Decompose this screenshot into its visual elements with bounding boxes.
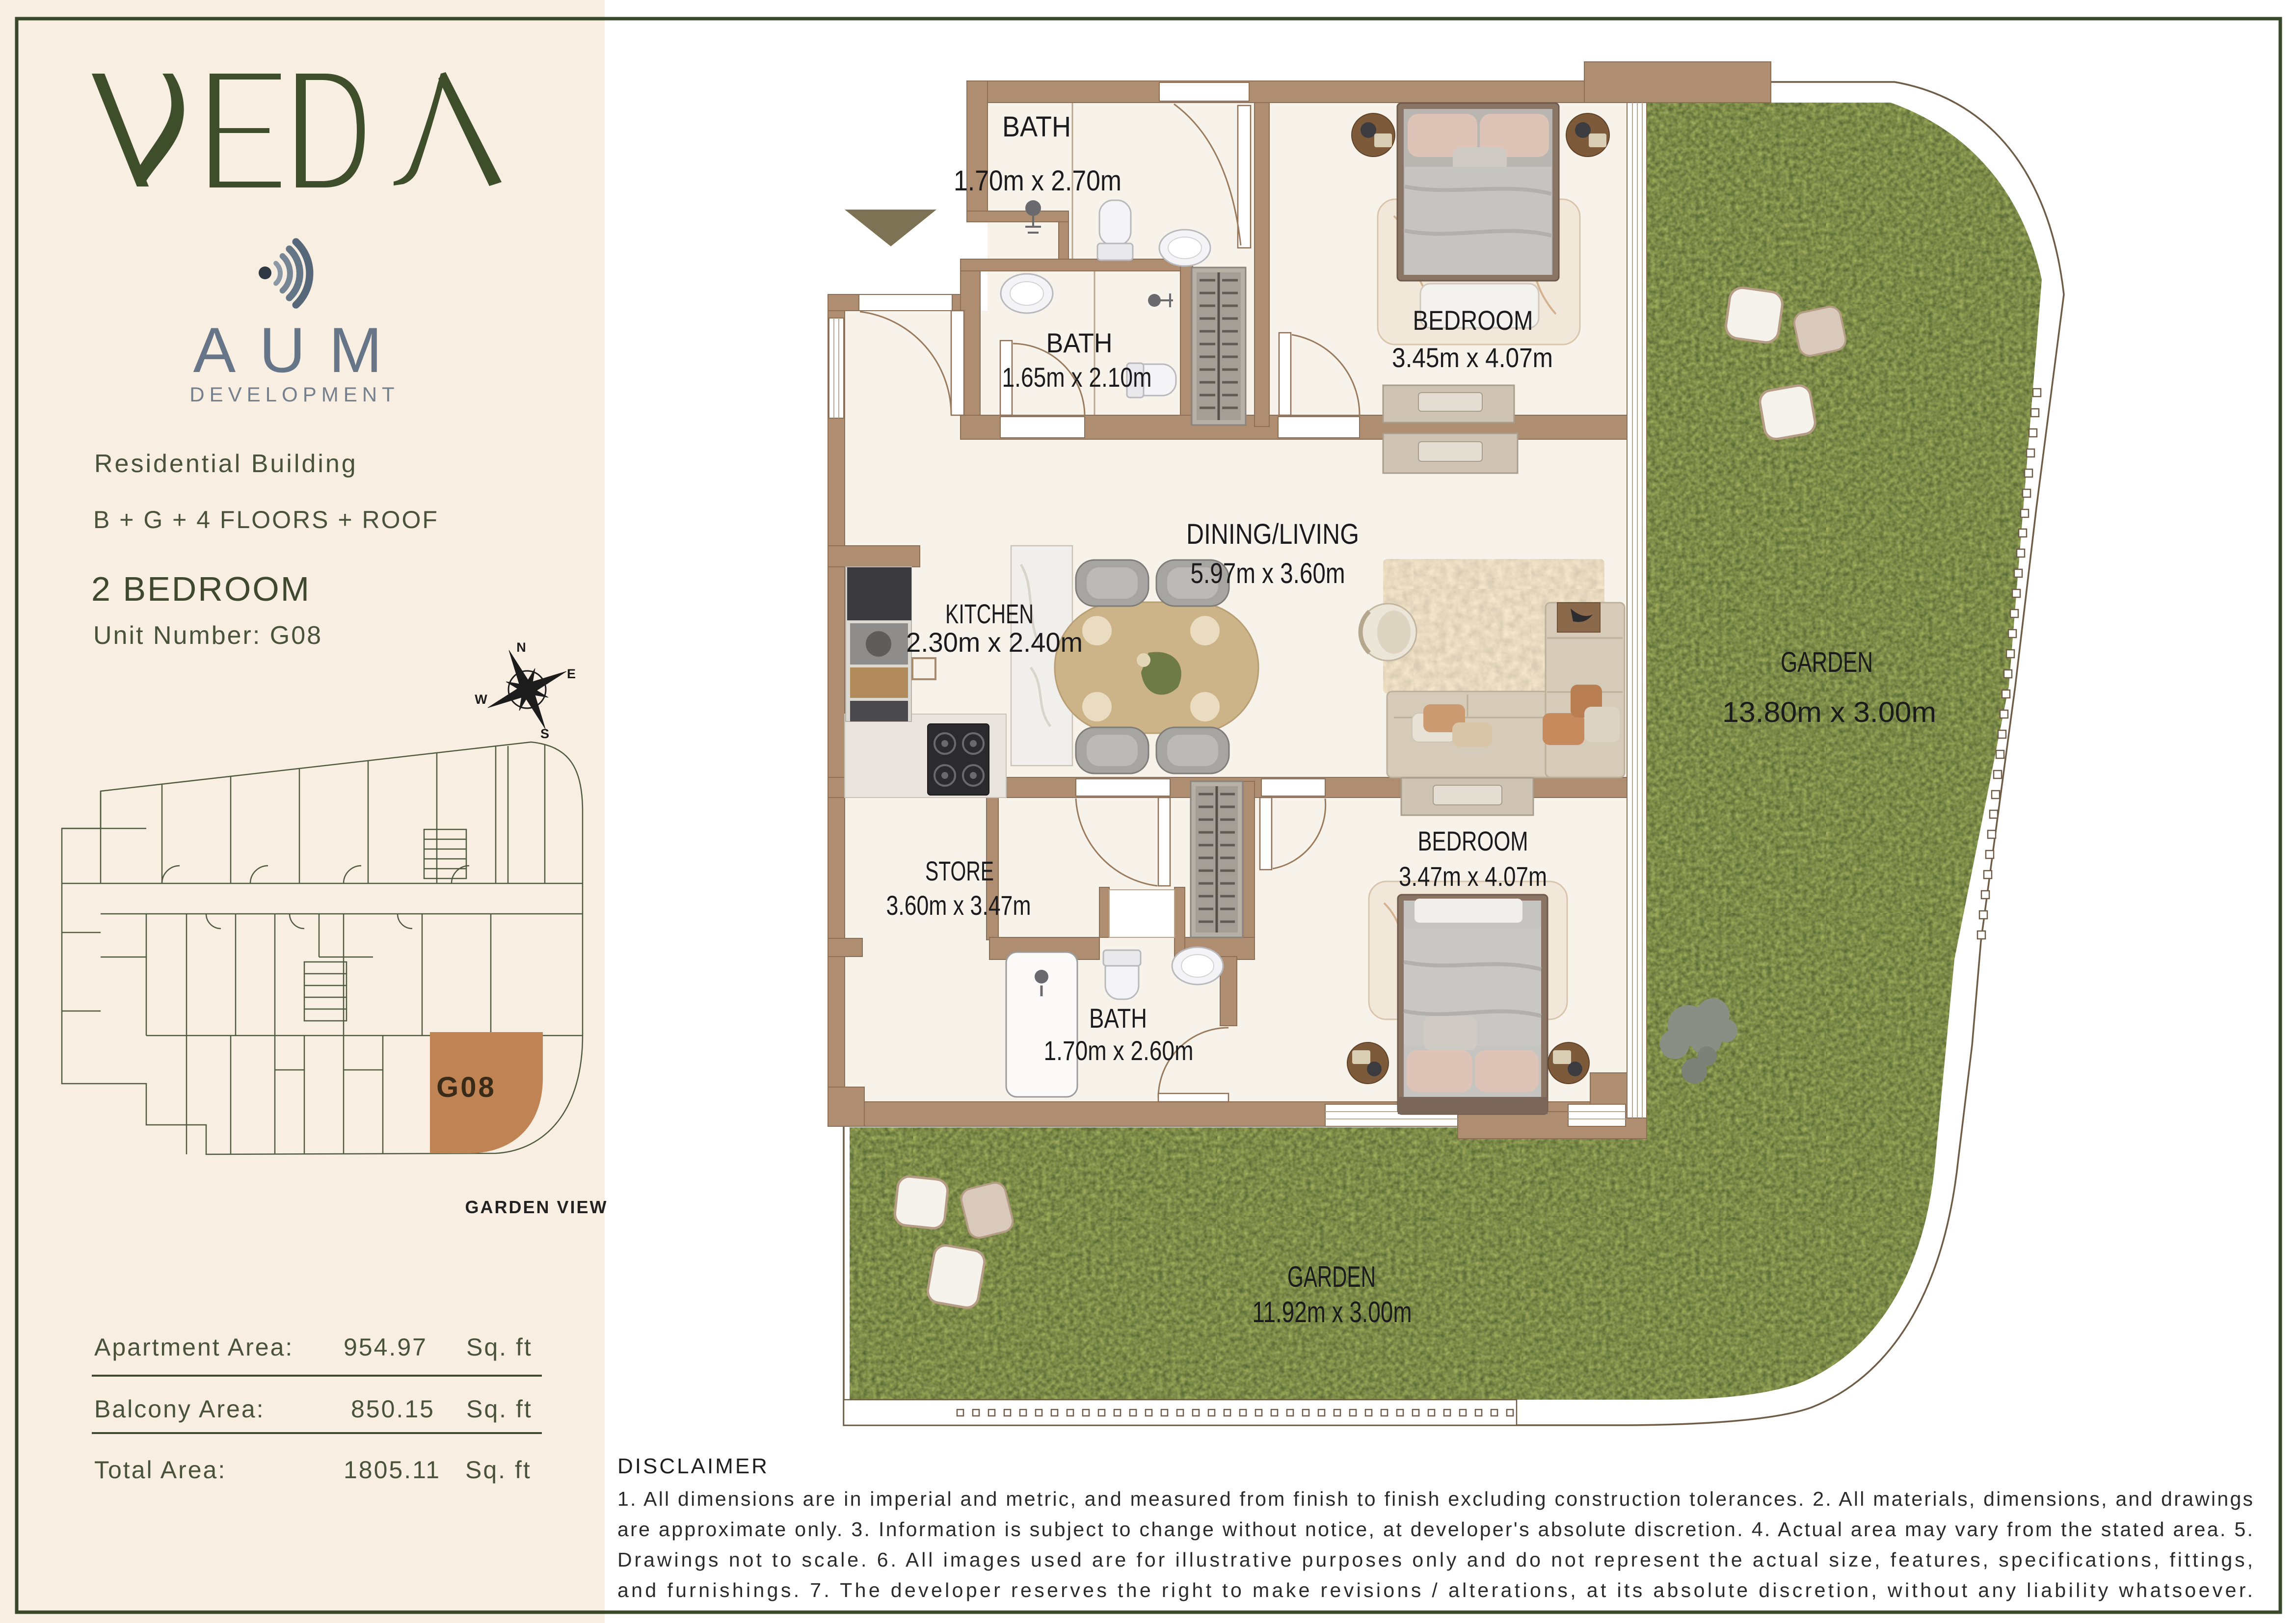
svg-text:1.65m x 2.10m: 1.65m x 2.10m [1002, 362, 1152, 393]
svg-text:BEDROOM: BEDROOM [1418, 825, 1528, 856]
svg-text:Sq. ft: Sq. ft [466, 1333, 533, 1361]
svg-text:Total Area:: Total Area: [94, 1456, 226, 1484]
svg-text:G08: G08 [436, 1071, 496, 1103]
svg-text:STORE: STORE [925, 855, 994, 886]
svg-text:S: S [540, 726, 549, 741]
svg-text:GARDEN VIEW: GARDEN VIEW [465, 1197, 608, 1217]
svg-text:DEVELOPMENT: DEVELOPMENT [189, 383, 399, 406]
svg-text:Balcony Area:: Balcony Area: [94, 1395, 265, 1423]
svg-text:2.30m x 2.40m: 2.30m x 2.40m [906, 627, 1083, 658]
svg-text:3.45m x 4.07m: 3.45m x 4.07m [1392, 342, 1553, 373]
svg-text:Sq. ft: Sq. ft [465, 1456, 532, 1484]
svg-text:AUM: AUM [193, 314, 406, 386]
svg-text:Residential Building: Residential Building [94, 450, 358, 478]
svg-text:3.47m x 4.07m: 3.47m x 4.07m [1399, 861, 1547, 892]
svg-text:DISCLAIMER: DISCLAIMER [617, 1454, 769, 1478]
svg-text:GARDEN: GARDEN [1287, 1260, 1376, 1293]
svg-text:Unit Number: G08: Unit Number: G08 [93, 621, 322, 650]
svg-text:850.15: 850.15 [351, 1395, 435, 1423]
svg-text:Apartment Area:: Apartment Area: [94, 1333, 294, 1361]
svg-text:and furnishings. 7. The develo: and furnishings. 7. The developer reserv… [617, 1579, 2253, 1601]
svg-text:BEDROOM: BEDROOM [1413, 305, 1533, 336]
svg-text:DINING/LIVING: DINING/LIVING [1186, 518, 1359, 550]
svg-text:2 BEDROOM: 2 BEDROOM [91, 570, 311, 608]
svg-text:W: W [475, 692, 487, 707]
svg-text:13.80m x 3.00m: 13.80m x 3.00m [1722, 696, 1936, 728]
svg-text:1.70m x 2.60m: 1.70m x 2.60m [1044, 1035, 1194, 1066]
svg-text:BATH: BATH [1089, 1003, 1147, 1034]
svg-text:B + G + 4 FLOORS + ROOF: B + G + 4 FLOORS + ROOF [93, 506, 439, 533]
svg-text:Sq. ft: Sq. ft [466, 1395, 533, 1423]
svg-text:3.60m x 3.47m: 3.60m x 3.47m [886, 890, 1031, 921]
svg-text:1805.11: 1805.11 [344, 1456, 441, 1484]
svg-text:BATH: BATH [1002, 111, 1071, 143]
svg-text:KITCHEN: KITCHEN [945, 598, 1034, 629]
svg-text:1. All dimensions are in imper: 1. All dimensions are in imperial and me… [617, 1488, 2253, 1510]
svg-text:E: E [567, 666, 576, 681]
svg-text:954.97: 954.97 [344, 1333, 427, 1361]
svg-text:BATH: BATH [1046, 327, 1113, 358]
svg-text:Drawings not to scale. 6. All: Drawings not to scale. 6. All images use… [617, 1548, 2253, 1571]
svg-text:11.92m x 3.00m: 11.92m x 3.00m [1253, 1296, 1412, 1329]
svg-text:1.70m x 2.70m: 1.70m x 2.70m [954, 165, 1121, 197]
svg-text:GARDEN: GARDEN [1781, 646, 1873, 678]
svg-text:5.97m x 3.60m: 5.97m x 3.60m [1191, 558, 1345, 589]
svg-text:N: N [516, 640, 526, 655]
